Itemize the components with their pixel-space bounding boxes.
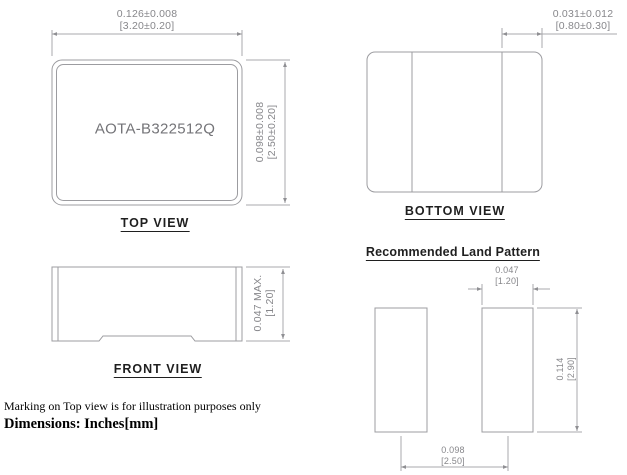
dimension-inches: 0.114 [555, 357, 566, 381]
bottom-view-terminal-dimension: 0.031±0.012 [0.80±0.30] [553, 8, 614, 32]
dimension-inches: 0.047 [495, 265, 519, 276]
top-view-width-dimension: 0.126±0.008 [3.20±0.20] [117, 8, 178, 32]
dimension-mm: [2.50] [441, 456, 465, 467]
dimension-mm: [2.50±0.20] [266, 102, 278, 163]
dimension-mm: [2.90] [566, 357, 577, 381]
front-view-outline [52, 267, 242, 341]
datasheet-drawing-page: 0.126±0.008 [3.20±0.20] 0.098±0.008 [2.5… [0, 0, 627, 475]
dimension-mm: [0.80±0.30] [553, 20, 614, 32]
top-view-height-dimension: 0.098±0.008 [2.50±0.20] [254, 102, 278, 163]
dimension-inches: 0.047 MAX. [252, 275, 264, 332]
part-marking: AOTA-B322512Q [95, 121, 215, 138]
bottom-view-outline [367, 52, 542, 192]
dimension-mm: [3.20±0.20] [117, 20, 178, 32]
dimension-inches: 0.098±0.008 [254, 102, 266, 163]
front-view-label: FRONT VIEW [114, 362, 202, 378]
dimension-inches: 0.031±0.012 [553, 8, 614, 20]
land-pattern-pad-pitch-dimension: 0.098 [2.50] [441, 445, 465, 467]
dimension-inches: 0.126±0.008 [117, 8, 178, 20]
dimensions-units-note: Dimensions: Inches[mm] [4, 416, 158, 433]
marking-note: Marking on Top view is for illustration … [4, 399, 261, 414]
dimension-mm: [1.20] [264, 275, 276, 332]
land-pattern-pad-width-dimension: 0.047 [1.20] [495, 265, 519, 287]
dimension-inches: 0.098 [441, 445, 465, 456]
bottom-view-label: BOTTOM VIEW [405, 204, 505, 220]
front-view-height-dimension: 0.047 MAX. [1.20] [252, 275, 276, 332]
top-view-label: TOP VIEW [121, 216, 190, 232]
dimension-mm: [1.20] [495, 276, 519, 287]
land-pattern-pads [375, 308, 533, 432]
land-pattern-title: Recommended Land Pattern [366, 245, 540, 261]
land-pattern-pad-height-dimension: 0.114 [2.90] [555, 357, 577, 381]
